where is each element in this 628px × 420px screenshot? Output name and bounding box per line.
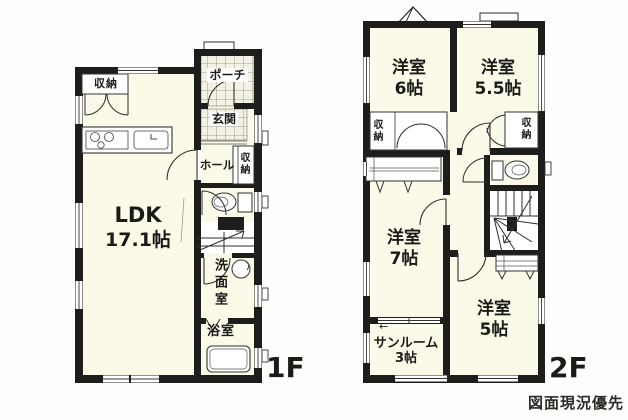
label-entrance-text: 玄関 <box>210 112 238 126</box>
label-closet-2f-right: 収納 <box>519 117 529 141</box>
label-porch: ポーチ <box>201 68 254 83</box>
bedroom5-name: 洋室 <box>455 299 533 320</box>
label-closet-2f-left: 収納 <box>371 119 381 143</box>
bedroom6-size: 6帖 <box>369 79 449 100</box>
label-bedroom5: 洋室 5帖 <box>455 299 533 340</box>
drawing-priority-stamp: 図面現況優先 <box>520 394 624 412</box>
bedroom7-size: 7帖 <box>365 249 443 270</box>
bedroom55-name: 洋室 <box>458 58 538 79</box>
label-bedroom7: 洋室 7帖 <box>365 228 443 269</box>
sunroom-size: 3帖 <box>362 351 450 366</box>
bedroom6-name: 洋室 <box>369 58 449 79</box>
sunroom-name: サンルーム <box>362 336 450 351</box>
floor-plan-page: 収納 ポーチ 玄関 ホール 収納 LDK 17.1帖 洗面室 浴室 1F 洋室 … <box>0 0 628 420</box>
paper-holder <box>545 162 551 175</box>
label-bathroom: 浴室 <box>196 324 246 340</box>
label-hall: ホール <box>198 158 236 172</box>
label-ldk: LDK 17.1帖 <box>88 203 188 252</box>
label-porch-text: ポーチ <box>207 68 247 82</box>
label-sunroom: サンルーム 3帖 <box>362 336 450 367</box>
porch-step <box>204 42 234 50</box>
bathtub <box>207 346 250 372</box>
label-hall-closet: 収納 <box>238 152 248 176</box>
direction-arrow: ← <box>379 320 388 333</box>
ldk-size: 17.1帖 <box>88 229 188 252</box>
floor-2f-title: 2F <box>549 351 588 385</box>
shutter-box <box>480 13 518 21</box>
kitchen-sink <box>134 131 168 149</box>
label-closet-1f: 収納 <box>84 77 128 90</box>
floor-1f-title: 1F <box>266 351 305 385</box>
label-entrance: 玄関 <box>201 112 247 127</box>
label-washroom: 洗面室 <box>213 258 226 309</box>
ldk-name: LDK <box>88 203 188 229</box>
bedroom5-size: 5帖 <box>455 320 533 341</box>
bedroom7-name: 洋室 <box>365 228 443 249</box>
label-bedroom6: 洋室 6帖 <box>369 58 449 99</box>
kitchen-counter <box>82 127 172 153</box>
bedroom55-size: 5.5帖 <box>458 79 538 100</box>
label-bedroom55: 洋室 5.5帖 <box>458 58 538 99</box>
